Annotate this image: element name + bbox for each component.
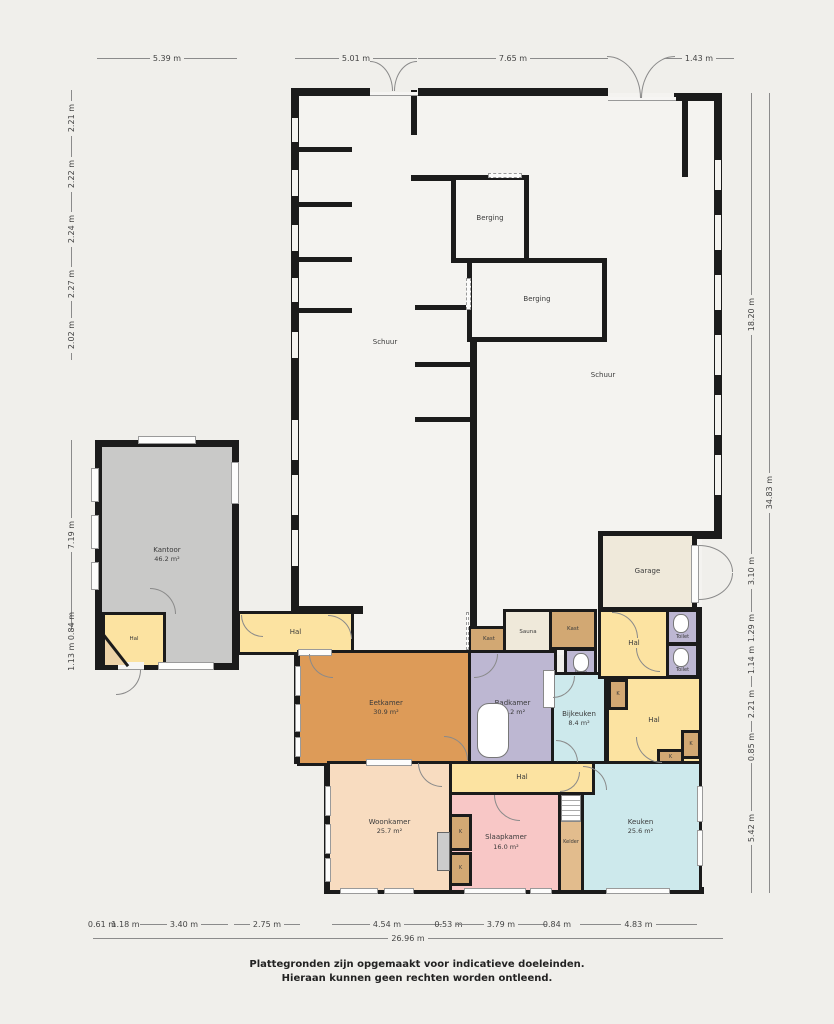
toilet-fixture xyxy=(673,614,689,633)
disclaimer-line-2: Hieraan kunnen geen rechten worden ontle… xyxy=(0,972,834,986)
dim-bottom-7: 0.84 m xyxy=(547,918,567,930)
window xyxy=(606,888,670,894)
window-gap xyxy=(715,395,721,435)
window-gap xyxy=(292,332,298,358)
dim-left-6: 1.13 m 0.84 m xyxy=(64,612,78,670)
window-gap xyxy=(292,530,298,566)
room-label: K xyxy=(616,692,619,698)
room-label: Kast xyxy=(567,626,579,633)
window xyxy=(91,515,99,549)
toilet-fixture xyxy=(573,653,589,672)
window-gap xyxy=(292,118,298,142)
wall-stall-stub xyxy=(415,417,470,422)
window-gap xyxy=(292,278,298,302)
room-label: K xyxy=(459,830,462,836)
room-berging-mid: Berging xyxy=(467,258,607,342)
dim-right-1: 1.29 m xyxy=(744,612,758,645)
window xyxy=(91,562,99,590)
double-door-leaf xyxy=(607,56,641,98)
disclaimer-line-1: Plattegronden zijn opgemaakt voor indica… xyxy=(0,958,834,972)
door-arc xyxy=(116,670,141,695)
room-label: Kelder xyxy=(563,840,579,846)
room-label: Hal xyxy=(290,628,302,637)
double-door-leaf xyxy=(394,61,417,91)
dashed-opening xyxy=(466,278,471,310)
window-gap xyxy=(292,225,298,251)
window-gap xyxy=(292,475,298,515)
toilet-fixture xyxy=(673,648,689,667)
room-kast-east: Kast xyxy=(549,609,597,650)
window-gap xyxy=(715,335,721,375)
dim-left-2: 2.24 m xyxy=(64,202,78,257)
window-gap xyxy=(292,420,298,460)
room-closet: K xyxy=(608,679,628,710)
window xyxy=(340,888,378,894)
room-label: K xyxy=(689,742,692,748)
dim-top-1: 5.01 m xyxy=(295,52,417,64)
dim-right-inner: 18.20 m xyxy=(744,93,758,537)
dim-left-3: 2.27 m xyxy=(64,257,78,311)
window xyxy=(530,888,552,894)
wall-stub-vertical xyxy=(411,90,417,135)
dim-bottom-total: 26.96 m xyxy=(93,932,723,944)
stairs xyxy=(561,795,581,822)
wall-stall-stub xyxy=(415,305,470,310)
window xyxy=(295,737,301,757)
dim-top-3: 1.43 m xyxy=(664,52,734,64)
dashed-opening xyxy=(466,612,469,650)
room-label: Toilet xyxy=(676,634,689,641)
room-label: Hal xyxy=(648,716,660,725)
window xyxy=(325,786,331,816)
window-gap xyxy=(715,160,721,190)
room-area: 16.0 m² xyxy=(493,843,518,852)
dim-bottom-3: 2.75 m xyxy=(234,918,300,930)
dim-left-5: 7.19 m xyxy=(64,440,78,630)
dim-bottom-1: 1.18 m xyxy=(111,918,140,930)
window xyxy=(464,888,526,894)
dim-right-5: 5.42 m xyxy=(744,763,758,893)
room-label: Hal xyxy=(516,773,528,782)
window xyxy=(138,436,196,444)
window xyxy=(158,662,214,670)
window-gap xyxy=(292,170,298,196)
garage-door-opening xyxy=(691,545,699,603)
wall-garage-link xyxy=(695,531,722,539)
dim-right-2: 1.14 m xyxy=(744,645,758,676)
room-label: Berging xyxy=(523,295,550,304)
room-berging-top: Berging xyxy=(451,175,529,263)
room-closet: K xyxy=(449,814,472,851)
room-area: 25.7 m² xyxy=(377,827,402,836)
room-label: Kast xyxy=(483,636,495,643)
room-area: 30.9 m² xyxy=(373,708,398,717)
dim-right-outer: 34.83 m xyxy=(762,93,776,893)
double-door-leaf xyxy=(370,61,393,91)
room-area: 46.2 m² xyxy=(154,555,179,564)
window xyxy=(295,704,301,732)
dashed-opening xyxy=(488,173,522,178)
wall-stub-horizontal xyxy=(411,175,453,181)
dim-bottom-4: 4.54 m xyxy=(332,918,442,930)
window-gap xyxy=(715,215,721,250)
room-label: Woonkamer xyxy=(369,818,411,827)
room-label: Eetkamer xyxy=(369,699,403,708)
dim-bottom-8: 4.83 m xyxy=(580,918,697,930)
room-label: Keuken xyxy=(628,818,654,827)
wall-barn-center xyxy=(470,340,477,626)
room-area: 8.4 m² xyxy=(568,719,589,728)
room-label: Slaapkamer xyxy=(485,833,527,842)
wall-stall-stub xyxy=(295,202,352,207)
window xyxy=(697,786,703,822)
dim-top-0: 5.39 m xyxy=(97,52,237,64)
wall-barn-top-mid xyxy=(418,88,608,96)
room-label: Garage xyxy=(635,567,661,576)
window-gap xyxy=(715,455,721,495)
dim-left-0: 2.21 m xyxy=(64,90,78,147)
room-label-schuur-right: Schuur xyxy=(558,371,648,380)
door-opening-barn-topleft xyxy=(370,92,418,96)
bathtub-fixture xyxy=(477,703,509,758)
window-gap xyxy=(715,275,721,310)
window xyxy=(325,858,331,882)
room-closet: K xyxy=(449,852,472,886)
dim-right-0: 3.10 m xyxy=(744,531,758,612)
room-label: K xyxy=(459,866,462,872)
dim-bottom-6: 3.79 m xyxy=(455,918,547,930)
wall-stall-stub xyxy=(295,147,352,152)
window xyxy=(384,888,414,894)
dim-top-2: 7.65 m xyxy=(418,52,608,64)
room-label: Hal xyxy=(129,636,138,643)
wall-stall-stub xyxy=(295,257,352,262)
dim-right-4: 0.85 m xyxy=(744,732,758,763)
room-label: K xyxy=(669,755,672,761)
room-label: Bijkeuken xyxy=(562,710,596,719)
wall-barn-top-left xyxy=(291,88,370,96)
dim-left-4: 2.02 m xyxy=(64,311,78,360)
room-area: 25.6 m² xyxy=(628,827,653,836)
wall-stall-stub xyxy=(415,362,470,367)
window xyxy=(325,824,331,854)
room-label: Sauna xyxy=(519,629,536,636)
floorplan-canvas: Berging Berging Schuur Schuur Garage Kan… xyxy=(0,0,834,1024)
dim-right-3: 2.21 m xyxy=(744,676,758,732)
room-label: Kantoor xyxy=(153,546,180,555)
room-label: Berging xyxy=(476,214,503,223)
dim-bottom-2: 3.40 m xyxy=(140,918,228,930)
window xyxy=(231,462,239,504)
room-label: Toilet xyxy=(676,667,689,674)
wall-barn-interior-right xyxy=(682,101,688,177)
dim-bottom-5: 0.53 m xyxy=(442,918,455,930)
door-panel xyxy=(437,832,450,871)
room-label-schuur-left: Schuur xyxy=(340,338,430,347)
window xyxy=(697,830,703,866)
dim-left-1: 2.22 m xyxy=(64,147,78,202)
window xyxy=(295,666,301,696)
window xyxy=(366,759,412,766)
wall-stall-stub xyxy=(295,308,352,313)
window xyxy=(91,468,99,502)
room-closet: K xyxy=(681,730,701,759)
room-garage: Garage xyxy=(598,531,697,612)
